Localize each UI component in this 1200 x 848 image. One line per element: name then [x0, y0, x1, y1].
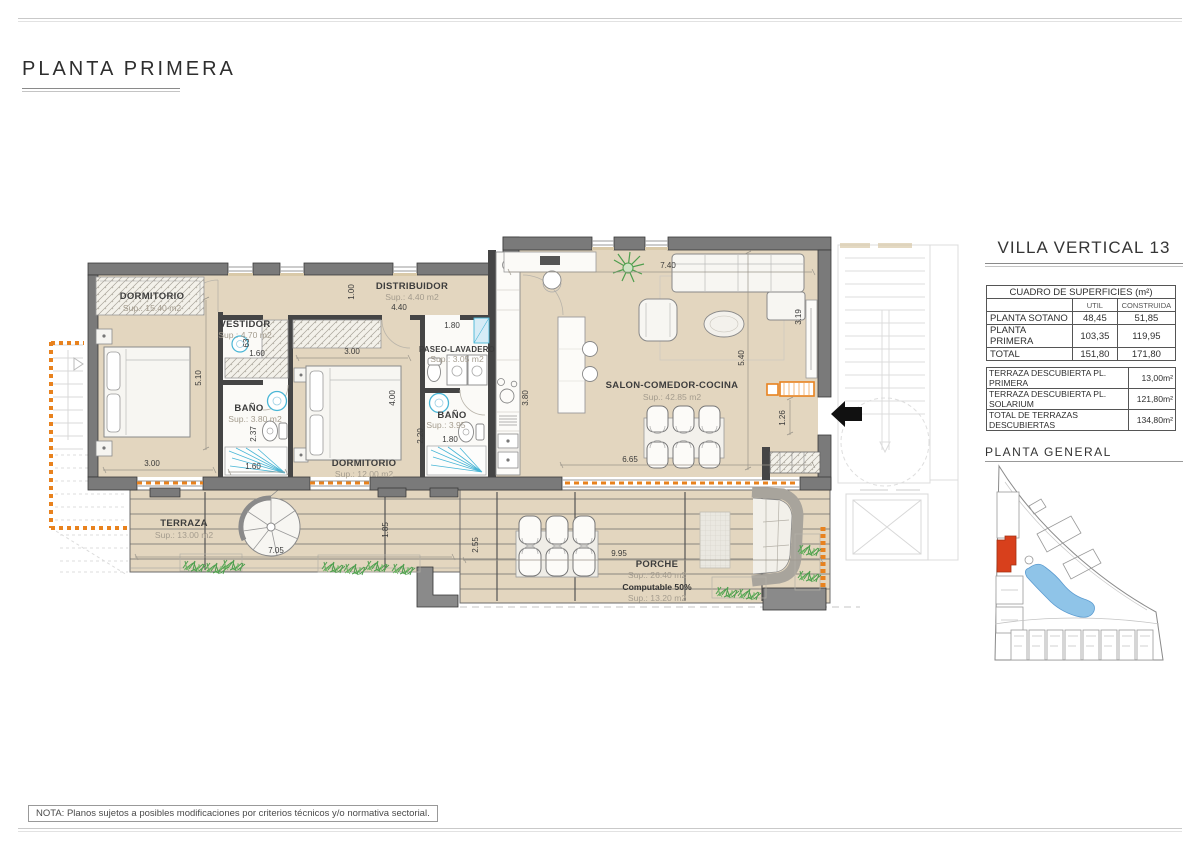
dim-3-00-a: 3.00	[144, 459, 160, 468]
communal-sill	[840, 243, 870, 248]
site-plan-underline	[985, 461, 1183, 462]
dim-6-65: 6.65	[622, 455, 638, 464]
entry-orange-box	[767, 384, 778, 395]
room-label-dormitorio2: DORMITORIO	[332, 458, 397, 469]
room-computable-porche: Computable 50%	[622, 582, 692, 592]
dim-63: 63	[242, 338, 251, 347]
dim-3-80: 3.80	[521, 390, 530, 406]
room-label-distribuidor: DISTRIBUIDOR	[376, 281, 448, 292]
room-label-vestidor: VESTIDOR	[220, 319, 271, 330]
room-label-bano1: BAÑO	[234, 403, 263, 414]
communal-staircase	[838, 245, 958, 560]
armchair	[639, 299, 677, 341]
room-sup-dormitorio2: Sup.: 12.00 m2	[335, 469, 394, 479]
dim-1-85: 1.85	[381, 522, 390, 538]
room-label-salon: SALON-COMEDOR-COCINA	[606, 380, 739, 391]
outdoor-rug	[700, 512, 730, 568]
dining-set	[644, 406, 724, 468]
elevator-shaft	[846, 490, 928, 560]
col-header-util: UTIL	[1072, 299, 1117, 312]
room-sup-bano1: Sup.: 3.80 m2	[228, 414, 282, 424]
villa-title: VILLA VERTICAL 13	[985, 238, 1183, 258]
dim-2-20: 2.20	[416, 428, 425, 444]
tv-unit	[806, 300, 817, 378]
deck-step-wall	[417, 567, 458, 607]
outdoor-sofa	[752, 492, 798, 581]
room-sup-porche: Sup.: 26.40 m2	[628, 570, 687, 580]
dim-1-60-a: 1.60	[245, 462, 261, 471]
room-sup-distribuidor: Sup.: 4.40 m2	[385, 292, 439, 302]
entrance-arrow-icon	[831, 401, 862, 427]
surfaces-table: CUADRO DE SUPERFICIES (m²) UTIL CONSTRUI…	[986, 285, 1176, 361]
kitchen-counter	[496, 252, 520, 475]
desk-chair	[543, 271, 561, 289]
note-box: NOTA: Planos sujetos a posibles modifica…	[28, 805, 438, 822]
site-plan-title: PLANTA GENERAL	[985, 445, 1183, 459]
dim-3-19: 3.19	[794, 309, 803, 325]
table-row: PLANTA PRIMERA 103,35 119,95	[987, 325, 1176, 348]
table-row: TOTAL DE TERRAZAS DESCUBIERTAS 134,80m²	[987, 410, 1176, 431]
outdoor-dining-set	[516, 516, 598, 577]
site-building-outline	[997, 492, 1019, 538]
table-row: TERRAZA DESCUBIERTA PL. PRIMERA 13,00m²	[987, 368, 1176, 389]
dim-1-00: 1.00	[347, 284, 356, 300]
communal-sill2	[878, 243, 912, 248]
table-row: TERRAZA DESCUBIERTA PL. SOLARIUM 121,80m…	[987, 389, 1176, 410]
dim-4-40: 4.40	[391, 303, 407, 312]
dim-1-60-b: 1.60	[249, 349, 265, 358]
dim-1-26: 1.26	[778, 410, 787, 426]
dim-2-55: 2.55	[471, 537, 480, 553]
dim-1-80-a: 1.80	[442, 435, 458, 444]
room-sup-terraza: Sup.: 13.00 m2	[155, 530, 214, 540]
desk-laptop	[540, 256, 560, 265]
porch-corner-wall	[763, 588, 826, 610]
room-label-dormitorio1: DORMITORIO	[120, 291, 185, 302]
right-panel: VILLA VERTICAL 13 CUADRO DE SUPERFICIES …	[985, 238, 1183, 674]
terraces-table: TERRAZA DESCUBIERTA PL. PRIMERA 13,00m² …	[986, 367, 1176, 431]
room-sup-paseo: Sup.: 3.05 m2	[430, 354, 484, 364]
room-label-terraza: TERRAZA	[160, 518, 208, 529]
dim-3-00-b: 3.00	[344, 347, 360, 356]
dim-4-00: 4.00	[388, 390, 397, 406]
room-computable-sup-porche: Sup.: 13.20 m2	[628, 593, 687, 603]
surfaces-table-title: CUADRO DE SUPERFICIES (m²)	[987, 286, 1176, 299]
dim-1-80-b: 1.80	[444, 321, 460, 330]
dim-2-37: 2.37	[249, 426, 258, 442]
room-sup-vestidor: Sup.: 4.70 m2	[218, 330, 272, 340]
room-sup-salon: Sup.: 42.85 m2	[643, 392, 702, 402]
table-row: PLANTA SOTANO 48,45 51,85	[987, 312, 1176, 325]
room-sup-dormitorio1: Sup.: 15.40 m2	[123, 303, 182, 313]
site-plan-map	[985, 464, 1183, 669]
dim-9-95: 9.95	[611, 549, 627, 558]
room-sup-bano2: Sup.: 3.95	[426, 420, 465, 430]
room-label-paseo: PASEO-LAVADERO	[419, 345, 495, 354]
table-row: TOTAL 151,80 171,80	[987, 348, 1176, 361]
villa-title-underline	[985, 263, 1183, 267]
dim-7-05: 7.05	[268, 546, 284, 555]
dim-5-10: 5.10	[194, 370, 203, 386]
room-label-porche: PORCHE	[636, 559, 678, 570]
dim-5-40: 5.40	[737, 350, 746, 366]
col-header-construida: CONSTRUIDA	[1117, 299, 1175, 312]
dim-7-40: 7.40	[660, 261, 676, 270]
